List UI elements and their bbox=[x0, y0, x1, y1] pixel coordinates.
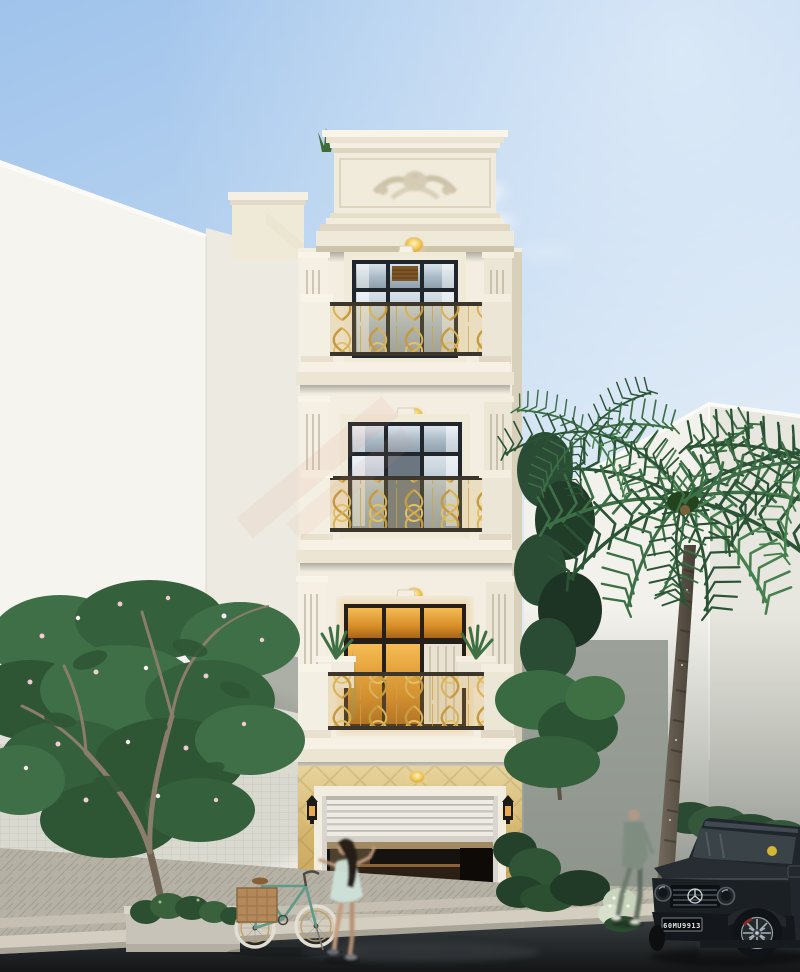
windshield-badge bbox=[767, 846, 777, 856]
suv-headlight-left bbox=[655, 885, 671, 901]
balustrade-post-left bbox=[299, 664, 331, 738]
scene-architectural-render: 60MU9913 bbox=[0, 0, 800, 972]
balcony-slab bbox=[296, 738, 516, 749]
man-jacket bbox=[622, 822, 648, 870]
man-shoe bbox=[630, 920, 640, 925]
girl-shoe bbox=[345, 954, 357, 960]
balcony-floor3 bbox=[296, 470, 516, 572]
balustrade-post-right bbox=[479, 470, 511, 542]
left-building bbox=[0, 160, 350, 972]
bicycle-saddle bbox=[252, 878, 268, 885]
man-shoe bbox=[611, 916, 621, 921]
suv-front-wheel bbox=[732, 908, 782, 958]
parapet bbox=[320, 130, 510, 231]
suv-headlight-right bbox=[718, 888, 735, 905]
bicycle-shadow bbox=[227, 947, 343, 957]
balustrade-post-left bbox=[301, 294, 333, 364]
roof-bulkhead bbox=[228, 192, 308, 260]
bicycle-basket bbox=[237, 888, 277, 922]
man-head bbox=[629, 810, 640, 821]
townhouse bbox=[292, 128, 522, 918]
palm-seed-cluster bbox=[680, 505, 690, 515]
suv-running-board bbox=[700, 940, 800, 948]
balcony-slab bbox=[300, 540, 512, 550]
balustrade-post-right bbox=[479, 294, 511, 364]
balcony-floor2 bbox=[292, 664, 520, 771]
ceiling-light bbox=[410, 771, 425, 783]
girl-leg bbox=[350, 902, 352, 954]
balcony-slab bbox=[300, 362, 510, 372]
gold-railing bbox=[330, 306, 482, 354]
suv-mirror bbox=[788, 866, 800, 877]
gold-railing bbox=[328, 676, 484, 728]
balcony-floor4 bbox=[296, 294, 514, 394]
girl-shoe bbox=[327, 949, 339, 955]
suv-left-wheel-sliver bbox=[649, 925, 665, 951]
license-plate-text: 60MU9913 bbox=[663, 922, 701, 930]
